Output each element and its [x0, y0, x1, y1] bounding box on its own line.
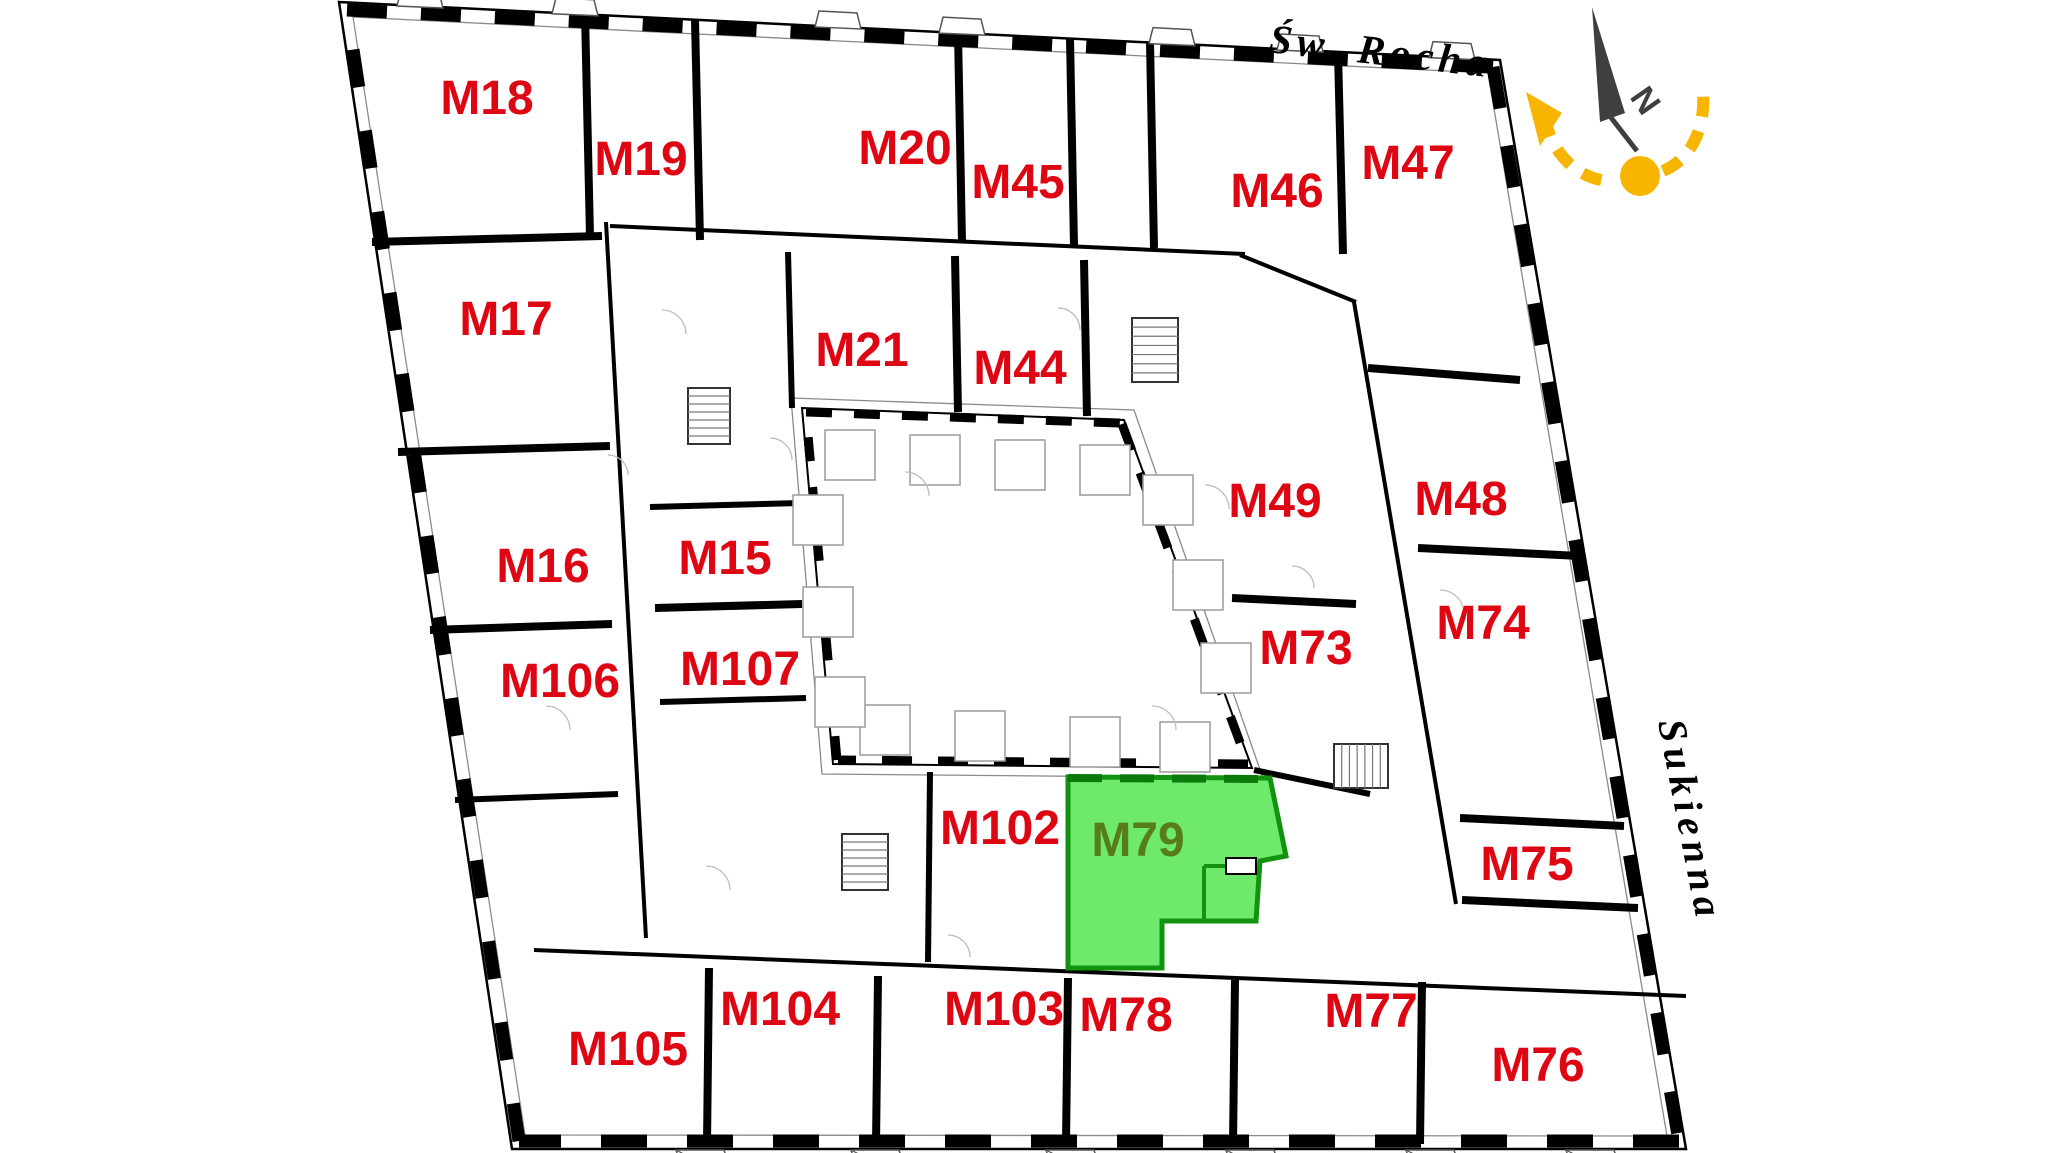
- floor-plan-svg: M18M19M20M45M46M47M17M21M44M49M48M16M15M…: [0, 0, 2048, 1153]
- apartment-label-m45[interactable]: M45: [971, 156, 1064, 209]
- apartment-label-m47[interactable]: M47: [1361, 137, 1454, 190]
- staircase: [842, 834, 888, 890]
- apartment-label-m105[interactable]: M105: [568, 1023, 688, 1076]
- balcony: [860, 705, 910, 755]
- balcony: [825, 430, 875, 480]
- apartment-label-m16[interactable]: M16: [496, 540, 589, 593]
- apartment-label-m104[interactable]: M104: [720, 983, 840, 1036]
- balcony: [1070, 717, 1120, 767]
- north-needle-icon: N: [1592, 7, 1668, 151]
- apartment-label-m73[interactable]: M73: [1259, 622, 1352, 675]
- street-name-right: Sukienna: [1649, 715, 1732, 926]
- balcony: [803, 587, 853, 637]
- balcony: [955, 711, 1005, 761]
- apartment-label-m17[interactable]: M17: [459, 293, 552, 346]
- staircase: [688, 388, 730, 444]
- balcony: [1201, 643, 1251, 693]
- north-letter: N: [1622, 80, 1667, 122]
- apartment-label-m74[interactable]: M74: [1436, 597, 1530, 650]
- apartment-label-m79[interactable]: M79: [1091, 814, 1184, 867]
- balcony: [1143, 475, 1193, 525]
- apartment-label-m76[interactable]: M76: [1491, 1039, 1584, 1092]
- balcony: [793, 495, 843, 545]
- apartment-label-m106[interactable]: M106: [500, 655, 620, 708]
- apartment-label-m49[interactable]: M49: [1228, 475, 1321, 528]
- apartment-label-m15[interactable]: M15: [678, 532, 771, 585]
- apartment-label-m102[interactable]: M102: [940, 802, 1060, 855]
- apartment-label-m21[interactable]: M21: [815, 324, 908, 377]
- apartment-label-m103[interactable]: M103: [944, 983, 1064, 1036]
- floor-plan-page: M18M19M20M45M46M47M17M21M44M49M48M16M15M…: [0, 0, 2048, 1153]
- staircase: [1132, 318, 1178, 382]
- apartment-label-m19[interactable]: M19: [594, 133, 687, 186]
- balcony: [910, 435, 960, 485]
- apartment-label-m107[interactable]: M107: [680, 643, 800, 696]
- compass-north-indicator: N: [1526, 7, 1703, 196]
- apartment-label-m48[interactable]: M48: [1414, 473, 1507, 526]
- balcony: [815, 677, 865, 727]
- staircase: [1334, 744, 1388, 788]
- apartment-label-m46[interactable]: M46: [1230, 165, 1323, 218]
- apartment-label-m44[interactable]: M44: [973, 342, 1067, 395]
- apartment-label-m18[interactable]: M18: [440, 72, 533, 125]
- apartment-label-m75[interactable]: M75: [1480, 838, 1573, 891]
- balcony: [995, 440, 1045, 490]
- balcony: [1173, 560, 1223, 610]
- apartment-label-m20[interactable]: M20: [858, 122, 951, 175]
- balcony: [1080, 445, 1130, 495]
- apartment-label-m77[interactable]: M77: [1324, 985, 1417, 1038]
- balcony: [1160, 722, 1210, 772]
- apartment-label-m78[interactable]: M78: [1079, 989, 1172, 1042]
